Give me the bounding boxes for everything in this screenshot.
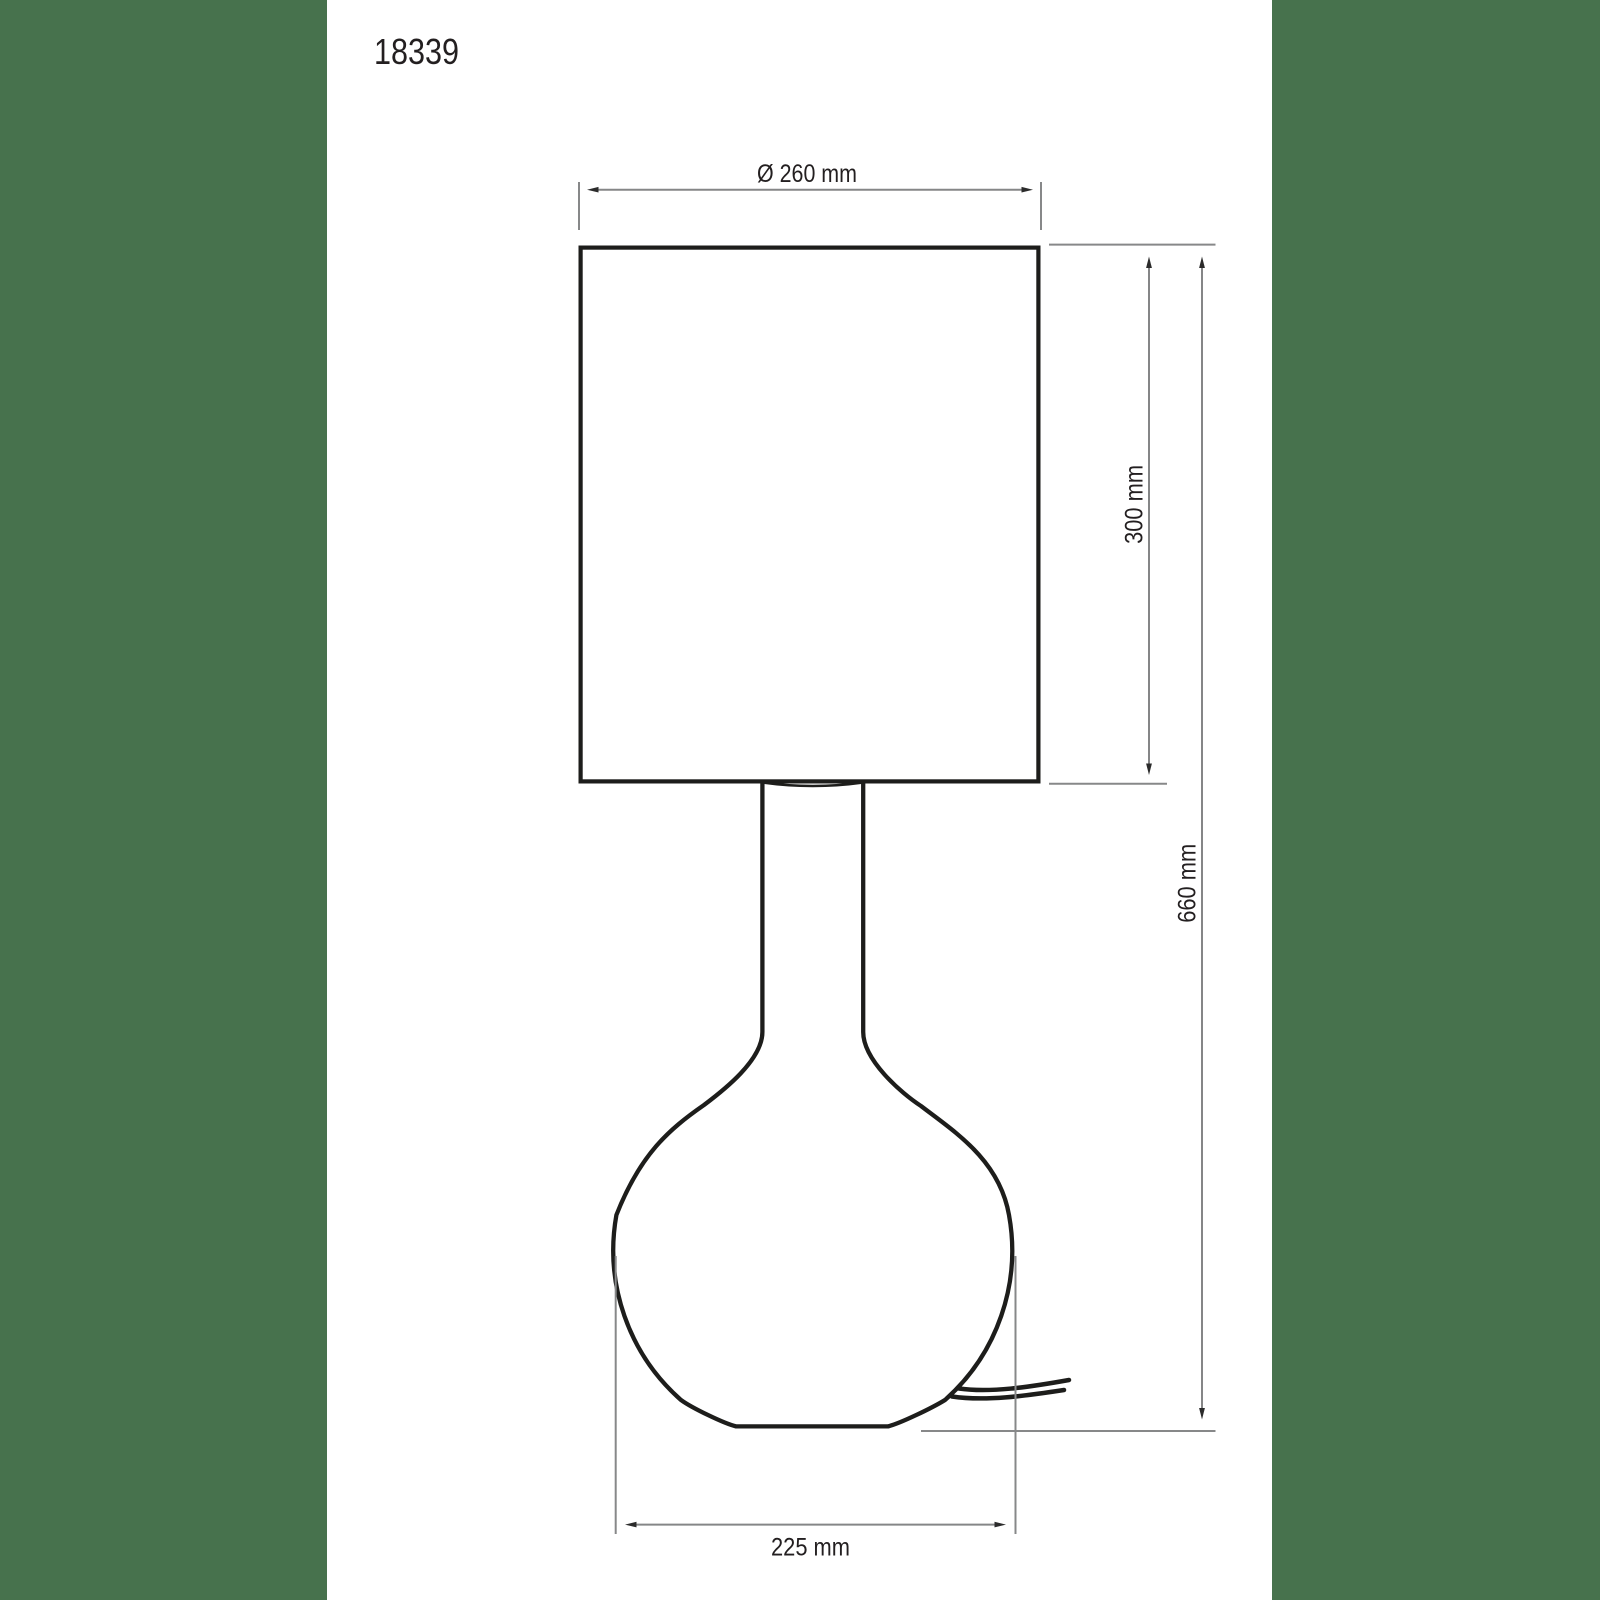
svg-text:300 mm: 300 mm xyxy=(1121,465,1149,544)
svg-text:660 mm: 660 mm xyxy=(1174,844,1202,923)
svg-text:225 mm: 225 mm xyxy=(771,1534,850,1562)
svg-text:18339: 18339 xyxy=(374,31,459,72)
svg-text:Ø 260 mm: Ø 260 mm xyxy=(757,160,857,188)
